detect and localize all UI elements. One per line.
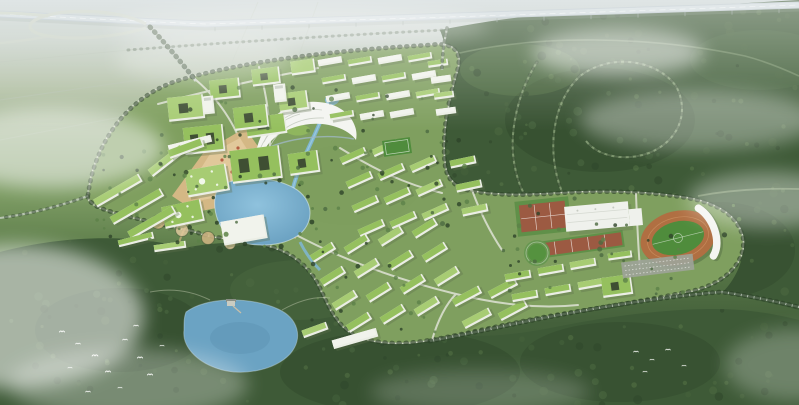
tree <box>486 170 490 174</box>
round-lawn <box>524 240 550 266</box>
tree <box>433 330 436 333</box>
tree <box>366 166 369 169</box>
tree <box>157 333 163 339</box>
tree <box>423 316 426 319</box>
tree <box>322 251 325 254</box>
tree <box>330 159 333 162</box>
tree <box>613 223 617 227</box>
tree <box>323 207 327 211</box>
tree <box>134 202 138 206</box>
tree <box>431 211 434 214</box>
tree <box>654 176 662 184</box>
tree <box>182 174 186 178</box>
tree <box>715 392 723 400</box>
tree <box>279 244 284 249</box>
tree <box>559 340 564 345</box>
tree <box>135 213 139 217</box>
tree <box>575 369 583 377</box>
tree <box>417 300 421 304</box>
tree <box>168 296 173 301</box>
tree <box>276 300 280 304</box>
tree <box>322 347 325 350</box>
tree <box>246 400 249 403</box>
tree <box>310 220 315 225</box>
tree <box>647 239 650 242</box>
tree <box>633 395 642 404</box>
tree <box>228 155 231 158</box>
tree <box>334 251 338 255</box>
tree <box>402 284 405 287</box>
tree <box>298 232 301 235</box>
tree <box>308 270 312 274</box>
tree <box>673 255 677 259</box>
tree <box>750 259 754 263</box>
tree <box>701 172 705 176</box>
tree <box>465 200 470 205</box>
tree <box>361 166 365 170</box>
tree <box>677 248 680 251</box>
tree <box>383 356 387 360</box>
tree <box>178 228 181 231</box>
tree <box>356 264 361 269</box>
tree <box>597 247 602 252</box>
rendering-canvas <box>0 0 799 405</box>
tree <box>165 310 169 314</box>
tree <box>212 196 215 199</box>
tree <box>160 133 164 137</box>
tree <box>333 146 338 151</box>
tree <box>434 356 441 363</box>
building <box>601 274 636 301</box>
tree <box>109 235 113 239</box>
tree <box>440 141 443 144</box>
tree <box>724 381 728 385</box>
tree <box>790 243 794 247</box>
tree <box>646 164 652 170</box>
tree <box>502 249 505 252</box>
tree <box>216 246 223 253</box>
tree <box>344 276 347 279</box>
tree <box>776 146 780 150</box>
tree <box>519 336 525 342</box>
tree <box>258 174 263 179</box>
tennis-courts <box>514 196 571 236</box>
tree <box>760 323 768 331</box>
tree <box>489 140 492 143</box>
tree <box>509 264 512 267</box>
tree <box>209 212 213 216</box>
tree <box>315 227 318 230</box>
tree <box>669 234 674 239</box>
tree <box>456 138 461 143</box>
tree <box>195 185 198 188</box>
tree <box>780 287 789 296</box>
tree <box>548 286 551 289</box>
tree <box>407 184 410 187</box>
tree <box>311 262 316 267</box>
tree <box>573 196 577 200</box>
tree <box>783 321 788 326</box>
tree <box>187 191 189 193</box>
tree <box>554 260 557 263</box>
tree <box>272 172 276 176</box>
tree <box>531 166 537 172</box>
tree <box>568 335 573 340</box>
tree <box>445 223 449 227</box>
tree <box>164 274 171 281</box>
tree <box>375 187 379 191</box>
tree <box>187 225 192 230</box>
tree <box>440 221 445 226</box>
tree <box>592 163 599 170</box>
tree <box>388 369 393 374</box>
tree <box>108 186 111 189</box>
tree <box>577 159 584 166</box>
tree <box>310 318 313 321</box>
tree <box>130 257 137 264</box>
tree <box>189 294 194 299</box>
tree <box>426 166 430 170</box>
tree <box>332 394 340 402</box>
tree <box>536 212 540 216</box>
tree <box>364 152 367 155</box>
tree <box>519 136 524 141</box>
tree <box>176 240 180 244</box>
tree <box>401 201 406 206</box>
tree <box>460 357 468 365</box>
tree <box>709 386 717 394</box>
tree <box>784 229 787 232</box>
tree <box>337 207 340 210</box>
tree <box>224 186 227 189</box>
tree <box>296 166 300 170</box>
tree <box>722 232 727 237</box>
building <box>229 145 285 187</box>
tree <box>277 178 281 182</box>
tree <box>390 180 393 183</box>
tree <box>518 272 521 275</box>
tree <box>349 347 355 353</box>
tree <box>445 140 448 143</box>
tree <box>103 227 106 230</box>
tree <box>601 237 606 242</box>
tree <box>622 259 625 262</box>
tree <box>393 365 399 371</box>
tree <box>430 155 433 158</box>
tree <box>163 260 168 265</box>
tree <box>264 182 267 185</box>
tree <box>592 378 599 385</box>
tree <box>623 278 628 283</box>
tree <box>457 202 461 206</box>
tree <box>513 234 516 237</box>
tree <box>630 366 634 370</box>
tree <box>683 381 687 385</box>
tree <box>655 292 658 295</box>
tree <box>339 190 344 195</box>
tree <box>685 392 691 398</box>
tree <box>319 240 322 243</box>
tree <box>333 321 338 326</box>
tree <box>462 164 467 169</box>
tree <box>238 133 241 136</box>
tree <box>442 198 445 201</box>
tree <box>345 373 350 378</box>
tree <box>173 173 176 176</box>
tree <box>144 288 149 293</box>
tree <box>650 268 653 271</box>
tree <box>239 175 242 178</box>
tree <box>369 150 372 153</box>
tree <box>690 167 694 171</box>
tree <box>380 171 385 176</box>
tree <box>148 238 152 242</box>
tree <box>452 173 457 178</box>
tree <box>508 289 512 293</box>
tree <box>610 253 613 256</box>
tree <box>158 162 162 166</box>
tree <box>567 172 570 175</box>
tree <box>533 260 537 264</box>
tree <box>388 144 390 146</box>
tree <box>528 204 532 208</box>
tree <box>103 219 106 222</box>
tree <box>631 382 637 388</box>
tree <box>448 351 453 356</box>
tree <box>417 354 420 357</box>
tree <box>516 247 520 251</box>
tree <box>434 182 438 186</box>
tree <box>157 307 162 312</box>
tree <box>599 391 607 399</box>
tree <box>386 228 391 233</box>
tree <box>524 132 528 136</box>
tree <box>304 365 308 369</box>
tree <box>190 232 193 235</box>
tree <box>311 207 314 210</box>
tree <box>243 242 248 247</box>
tree <box>713 381 717 385</box>
tree <box>223 155 226 158</box>
tree <box>623 325 626 328</box>
tree <box>679 324 683 328</box>
tree <box>576 342 584 350</box>
tree <box>500 182 504 186</box>
tree <box>246 278 255 287</box>
tree <box>263 245 266 248</box>
tree <box>600 253 604 257</box>
tree <box>436 161 439 164</box>
tree <box>299 181 304 186</box>
top-haze <box>0 0 799 132</box>
tree <box>590 364 596 370</box>
tree <box>517 223 522 228</box>
tree <box>197 239 200 242</box>
tree <box>340 381 349 390</box>
tree <box>517 260 520 263</box>
tree <box>224 232 229 237</box>
tree <box>365 242 368 245</box>
tree <box>557 227 561 231</box>
tree <box>148 177 153 182</box>
tree <box>235 221 238 224</box>
tree <box>740 394 745 399</box>
tree <box>339 309 343 313</box>
tree <box>216 138 219 141</box>
tree <box>656 153 660 157</box>
tree <box>394 276 398 280</box>
tree <box>215 221 219 225</box>
tree <box>670 277 673 280</box>
tree <box>95 218 99 222</box>
tree <box>593 343 601 351</box>
tree <box>625 224 628 227</box>
tree <box>293 287 298 292</box>
tree <box>595 222 598 225</box>
tree <box>388 264 392 268</box>
tree <box>409 311 413 315</box>
tree <box>306 152 310 156</box>
tree <box>306 195 310 199</box>
tree <box>400 328 403 331</box>
tree <box>336 286 339 289</box>
tree <box>230 273 233 276</box>
tree <box>528 345 534 351</box>
tree <box>656 287 660 291</box>
tree <box>633 165 639 171</box>
tree <box>300 262 304 266</box>
tree <box>118 192 121 195</box>
aerial-campus-rendering <box>0 0 799 405</box>
tree <box>352 302 356 306</box>
building <box>288 150 323 179</box>
tree <box>529 260 532 263</box>
tree <box>274 289 279 294</box>
tree <box>479 350 483 354</box>
